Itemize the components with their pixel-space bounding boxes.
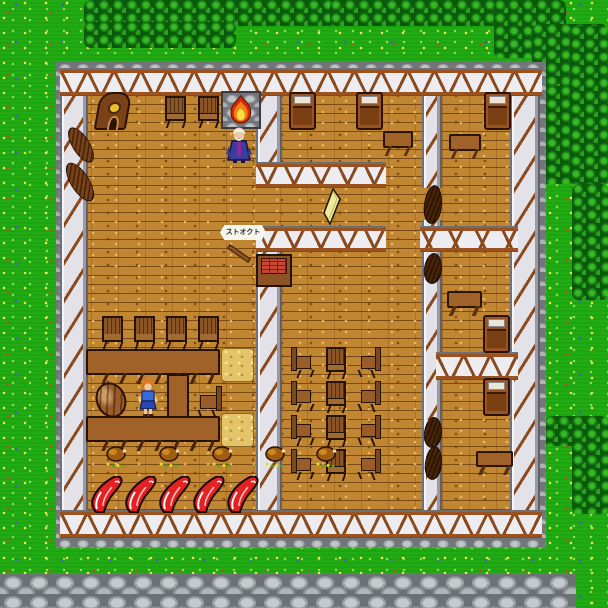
chicken-part [228,465,231,468]
chair-w-part [357,404,362,411]
npc-old-man[interactable] [225,124,253,164]
chair[interactable] [196,386,223,418]
chair[interactable] [164,316,190,349]
chicken-part [107,463,110,466]
npc-waitress-part [140,401,156,409]
wooden-stick[interactable] [226,241,250,263]
chair-s-part [102,316,123,336]
roast-chicken[interactable] [262,445,288,468]
chicken-part [313,445,339,468]
chair-s-part [342,474,347,481]
chair-e-part [297,404,302,412]
counter-table[interactable] [86,416,220,442]
chair-w-part [361,356,376,370]
npc-waitress-part [155,395,158,403]
chair-s-part [327,406,332,413]
meat-part [125,476,159,513]
chicken-part [109,449,117,455]
chair[interactable] [291,347,315,378]
roast-chicken[interactable] [209,445,235,468]
chair-w-part [357,370,362,377]
bed-part [360,106,379,125]
chicken-part [317,447,335,461]
chair-e-part [309,370,314,377]
chair-s-part [199,342,204,349]
chicken-part [271,465,274,468]
chicken-part [333,449,337,453]
chicken-part [317,463,320,466]
chair[interactable] [357,347,381,378]
chair-w-part [361,390,376,404]
chicken-part [165,465,168,468]
chicken-part [209,445,235,468]
chair-e-part [297,438,302,446]
chair[interactable] [132,316,158,349]
chair[interactable] [100,316,126,349]
hay-bale[interactable] [221,413,254,447]
chair-s-part [165,114,186,121]
chicken-part [322,465,325,468]
wall-bottom [60,510,542,538]
chicken-part [266,447,284,461]
counter-table[interactable] [86,349,220,375]
chair-s-part [181,121,186,128]
npc-oldman-part [237,142,241,156]
chair-s-part [214,121,219,128]
chair-s-part [326,415,346,434]
table-part [449,306,457,316]
chair-s-part [198,334,219,341]
chair-e-part [309,404,314,411]
npc-waitress-part [149,414,154,417]
chicken-part [229,449,233,453]
chicken-part [281,465,284,468]
bed-part [294,96,311,104]
meat-part [159,476,193,513]
chair-s-part [103,342,108,349]
chair-w-part [200,395,217,409]
npc-oldman-part [248,146,252,156]
table[interactable] [449,131,481,159]
chair[interactable] [291,449,315,480]
roast-chicken[interactable] [156,445,182,468]
meat-slab[interactable] [193,476,227,513]
chair-w-part [197,410,203,418]
roast-chicken[interactable] [313,445,339,468]
chair-s-part [214,342,219,349]
meat-part [91,476,125,513]
chair-s-part [342,372,347,379]
chair-s-part [327,474,332,481]
tree-cluster [570,26,608,186]
table-part [472,149,480,159]
chair-s-part [150,342,155,349]
chicken-part [215,449,223,455]
chair-s-part [198,96,219,115]
cheese-wedge[interactable] [322,188,342,226]
bed[interactable] [484,92,511,130]
chicken-part [327,464,330,467]
chair-s-part [166,121,171,128]
chair-w-part [361,458,376,472]
chair-s-part [166,316,187,336]
chair[interactable] [357,415,381,446]
chicken-part [276,464,279,467]
chair[interactable] [324,347,349,379]
chair[interactable] [291,381,315,412]
chair-s-part [165,96,186,115]
counter-table[interactable] [167,374,189,418]
chair[interactable] [324,381,349,413]
chair-e-part [296,458,311,472]
bed-part [489,96,506,104]
table-part [451,149,459,159]
chair[interactable] [196,316,222,349]
bed-part [293,106,312,125]
meat-part [193,476,227,513]
wall-inner-hall-north [256,226,386,252]
bed-part [488,319,505,327]
bed[interactable] [483,315,510,353]
npc-waitress-part [143,414,148,417]
meat-part [227,476,261,513]
chair[interactable] [357,449,381,480]
wall-inner-rooms-west-a [422,94,442,188]
chair[interactable] [163,96,189,128]
chair-e-part [297,472,302,480]
chair-s-part [326,381,346,400]
cheese-part [324,189,340,224]
bed[interactable] [356,92,383,130]
chair-s-part [198,114,219,121]
chair-s-part [342,440,347,447]
table-part [478,466,486,475]
chair-s-part [327,372,332,379]
chair-w-part [357,472,362,479]
cheese-part [322,188,342,226]
tree-cluster [572,442,608,514]
npc-oldman-part [225,124,253,164]
table-part [476,451,513,467]
chair-s-part [198,316,219,336]
chicken-part [122,465,125,468]
chair-s-part [326,433,346,440]
chicken-part [223,464,226,467]
chair-w-part [357,438,362,445]
chair-s-part [326,365,346,372]
chicken-part [319,449,327,455]
chair-s-part [342,406,347,413]
table[interactable] [476,448,513,475]
npc-oldman-part [233,160,237,163]
meat-slab[interactable] [159,476,193,513]
meat-slab[interactable] [227,476,261,513]
npc-waitress[interactable] [136,377,160,417]
table-part [503,466,511,475]
crate-part [261,258,288,274]
chair-s-part [182,342,187,349]
bed-part [487,329,506,348]
chair-s-part [326,347,346,366]
chair-s-part [102,334,123,341]
chair-e-part [297,370,302,378]
chicken-part [218,465,221,468]
chair-s-part [167,342,172,349]
game-viewport: ストオクト [0,0,608,608]
npc-oldman-part [226,146,230,156]
table-part [384,146,391,156]
cobblestone-road [0,574,576,608]
chair[interactable] [357,381,381,412]
chair-e-part [296,390,311,404]
chicken-part [117,464,120,467]
chicken-part [112,465,115,468]
chicken-part [175,465,178,468]
chair[interactable] [291,415,315,446]
bed-part [488,106,507,125]
wall-inner-hall-west [256,250,282,512]
sign-banner-text: ストオクト [226,229,261,236]
chair[interactable] [324,415,349,447]
chair-e-part [309,472,314,479]
chicken-part [160,463,163,466]
chair-s-part [118,342,123,349]
chicken-part [103,445,129,468]
meat-slab[interactable] [91,476,125,513]
npc-oldman-part [241,160,245,163]
bed-part [487,392,506,411]
chicken-part [332,465,335,468]
wall-right [510,94,540,512]
tree-cluster [330,0,520,26]
chair-s-part [134,334,155,341]
chicken-part [123,449,127,453]
roast-chicken[interactable] [103,445,129,468]
chicken-part [176,449,180,453]
chair-s-part [166,334,187,341]
chair-e-part [296,356,311,370]
chicken-part [282,449,286,453]
fireplace-part [228,93,254,126]
tree-cluster [84,22,236,48]
table-part [404,146,411,156]
bed-part [488,382,505,390]
chicken-part [213,447,231,461]
table[interactable] [383,128,413,156]
chair-s-part [199,121,204,128]
bed-part [361,96,378,104]
wall-inner-bedroom-south [256,162,386,188]
chicken-part [266,463,269,466]
crate[interactable] [256,254,292,287]
chicken-part [213,463,216,466]
chair-w-part [361,424,376,438]
chair[interactable] [196,96,222,128]
chair-e-part [296,424,311,438]
bed[interactable] [289,92,316,130]
chair-s-part [134,316,155,336]
chicken-part [156,445,182,468]
chair-s-part [135,342,140,349]
chicken-part [268,449,276,455]
chair-s-part [326,399,346,406]
wall-inner-room1-south [420,226,518,252]
grandfather-clock[interactable] [96,92,132,132]
npc-waitress-part [136,377,160,417]
sign-banner[interactable]: ストオクト [220,225,266,240]
chicken-part [107,447,125,461]
npc-waitress-part [144,383,152,391]
npc-waitress-part [142,391,154,401]
chicken-part [262,445,288,468]
npc-waitress-part [138,395,141,403]
wall-inner-room2-south [436,352,518,380]
bed[interactable] [483,378,510,416]
table[interactable] [447,288,482,316]
table-part [472,306,480,316]
hay-bale[interactable] [221,348,254,382]
tree-cluster [572,184,608,300]
chicken-part [162,449,170,455]
chicken-part [170,464,173,467]
meat-slab[interactable] [125,476,159,513]
chicken-part [160,447,178,461]
